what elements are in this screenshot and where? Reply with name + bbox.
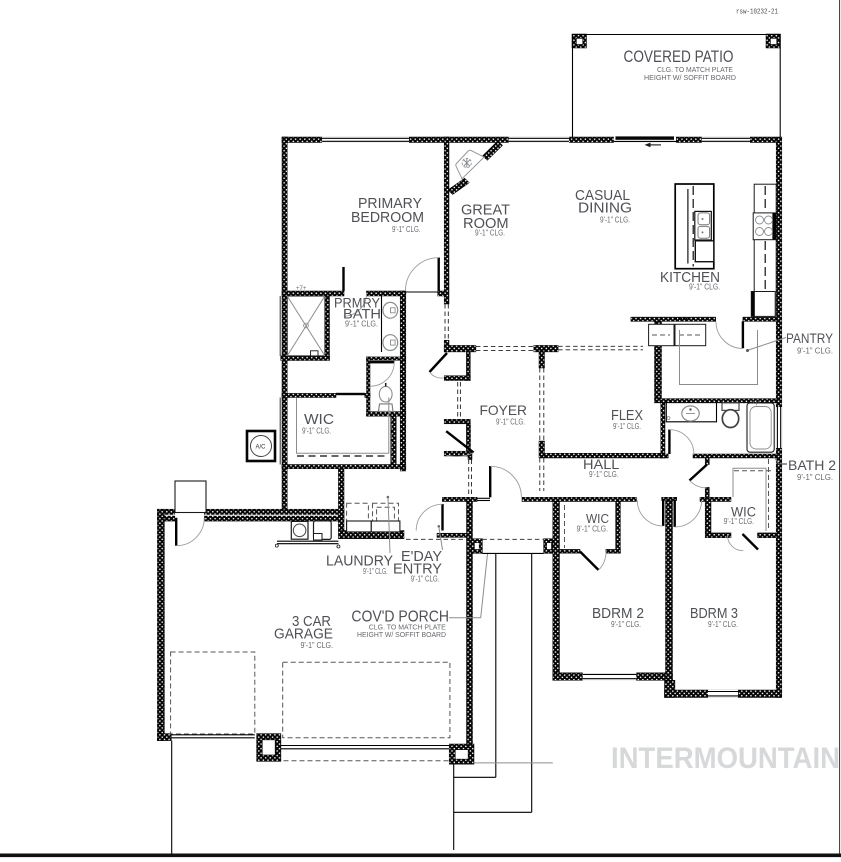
svg-text:BEDROOM: BEDROOM [351,209,424,226]
svg-text:9'-1" CLG.: 9'-1" CLG. [363,567,388,576]
svg-text:9'-1" CLG.: 9'-1" CLG. [797,473,833,482]
svg-text:9'-1" CLG.: 9'-1" CLG. [600,216,630,225]
svg-text:9'-1" CLG.: 9'-1" CLG. [496,418,525,427]
svg-text:HEIGHT W/ SOFFIT BOARD: HEIGHT W/ SOFFIT BOARD [644,73,737,82]
svg-text:9'-1" CLG.: 9'-1" CLG. [589,470,619,479]
svg-text:9'-1" CLG.: 9'-1" CLG. [611,620,641,629]
svg-text:9'-1" CLG.: 9'-1" CLG. [345,320,378,329]
svg-text:9'-1" CLG.: 9'-1" CLG. [577,525,608,534]
svg-text:9'-1" CLG.: 9'-1" CLG. [708,620,738,629]
svg-text:BATH 2: BATH 2 [788,457,836,473]
svg-text:INTERMOUNTAIN: INTERMOUNTAIN [611,742,840,775]
svg-text:9'-1" CLG.: 9'-1" CLG. [392,225,421,234]
svg-text:FOYER: FOYER [480,402,528,418]
svg-text:9'-1" CLG.: 9'-1" CLG. [411,575,440,584]
svg-text:9'-1" CLG.: 9'-1" CLG. [302,427,331,436]
svg-text:COVERED PATIO: COVERED PATIO [624,47,734,66]
svg-text:9'-1" CLG.: 9'-1" CLG. [689,283,720,292]
svg-text:9'-1" CLG.: 9'-1" CLG. [475,229,505,238]
svg-text:9'-1" CLG.: 9'-1" CLG. [613,422,641,431]
svg-text:WIC: WIC [304,411,334,428]
svg-text:A/C: A/C [256,445,267,451]
svg-text:+|+: +|+ [752,400,761,406]
svg-text:rsw-10232-21: rsw-10232-21 [736,9,778,17]
svg-text:9'-1" CLG.: 9'-1" CLG. [797,347,833,356]
svg-text:PANTRY: PANTRY [786,330,834,346]
svg-text:DINING: DINING [578,200,632,217]
svg-text:HEIGHT W/ SOFFIT BOARD: HEIGHT W/ SOFFIT BOARD [357,630,447,639]
svg-text:+7+: +7+ [296,286,307,292]
svg-text:9'-1" CLG.: 9'-1" CLG. [724,517,754,526]
svg-text:9'-1" CLG.: 9'-1" CLG. [301,641,334,650]
